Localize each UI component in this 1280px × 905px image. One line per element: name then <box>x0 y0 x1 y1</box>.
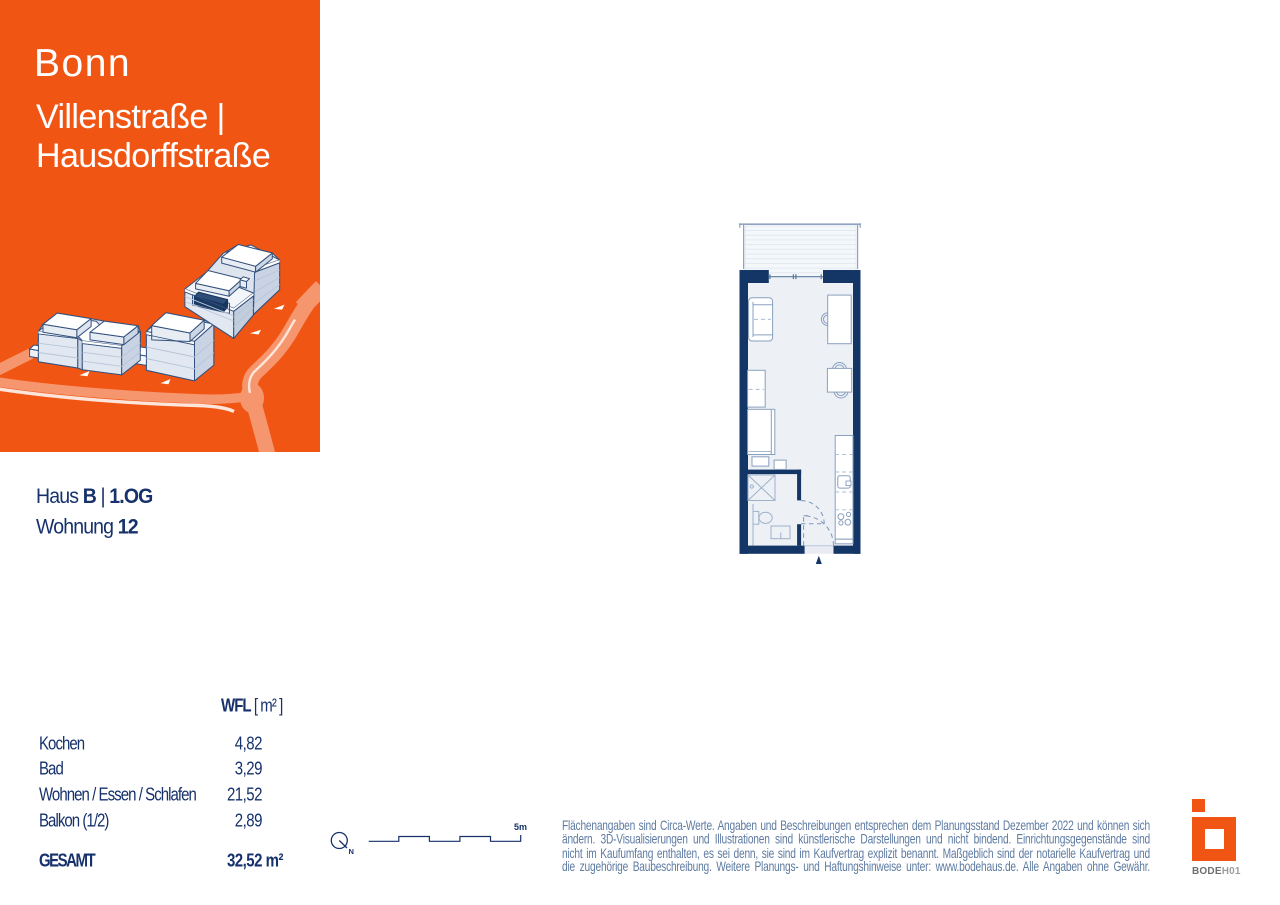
svg-text:5m: 5m <box>514 822 527 832</box>
svg-text:N: N <box>349 847 354 856</box>
